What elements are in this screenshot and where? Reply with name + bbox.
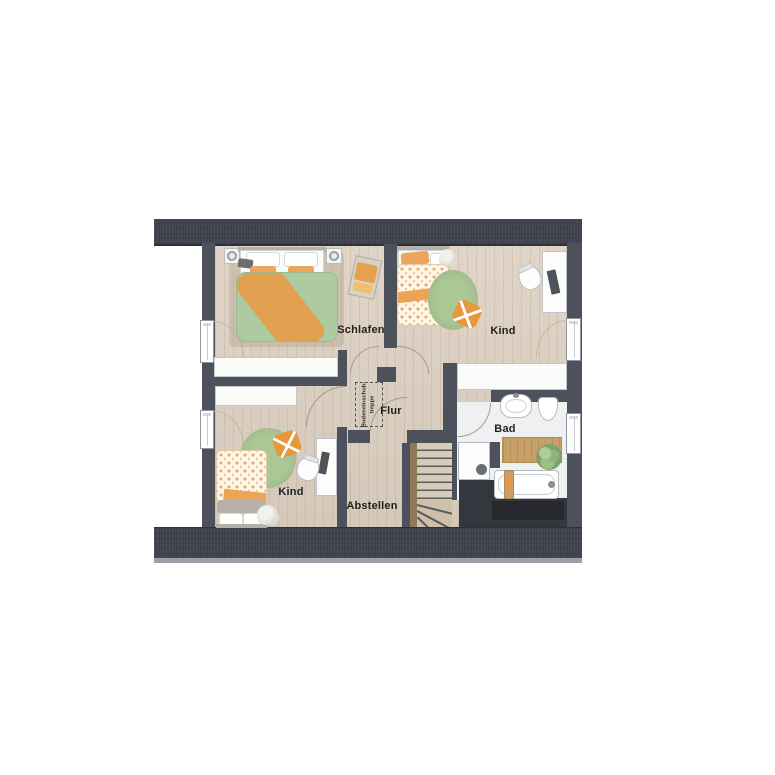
room-label-bad: Bad [485, 423, 525, 435]
eave-edge [154, 558, 582, 563]
bath-plant [536, 444, 562, 470]
window-schlafen [200, 320, 214, 363]
shower [458, 442, 490, 480]
plant [257, 505, 278, 525]
room-label-flur: Flur [369, 405, 413, 417]
pillow [284, 252, 318, 267]
window-bad [566, 413, 581, 454]
room-label-kind-top: Kind [478, 325, 528, 337]
wall-schlafen-south [215, 377, 347, 386]
wall-bad-west [443, 363, 457, 441]
roof-band-bottom [154, 527, 582, 559]
window-kind-bottom [200, 410, 214, 449]
wall-flur-junction [377, 367, 396, 382]
wardrobe-schlafen [214, 357, 338, 377]
bed-headboard [216, 524, 267, 528]
staircase [417, 443, 452, 500]
plant [439, 249, 456, 266]
wall-exterior-left [202, 243, 215, 527]
wall-abstellen-stairs [402, 443, 410, 527]
stair-winder [417, 500, 452, 527]
wardrobe-kind-bottom [215, 386, 297, 406]
room-label-schlafen: Schlafen [326, 324, 396, 336]
room-label-kind-bottom: Kind [266, 486, 316, 498]
wardrobe-kind-top [457, 363, 567, 390]
shower-fixture-icon [476, 464, 487, 475]
attic-hatch-line1: Bodeneinschub- [362, 382, 369, 427]
room-label-abstellen: Abstellen [337, 500, 407, 512]
wall-bad-north-west [443, 390, 457, 402]
shower-partition [490, 442, 500, 468]
throw-blanket [236, 272, 328, 342]
lamp-left [227, 251, 237, 261]
wall-abstellen-north-west [348, 430, 370, 443]
shampoo-bottle [506, 477, 512, 487]
stair-stringer [410, 443, 417, 527]
wall-exterior-right [567, 243, 582, 527]
lamp-right [329, 251, 339, 261]
wall-kindbottom-east [337, 427, 347, 527]
wall-jamb-west [338, 350, 347, 378]
tub-faucet [548, 481, 555, 488]
sink-faucet [513, 393, 519, 398]
void-inset [492, 501, 564, 520]
roof-band-top [154, 219, 582, 246]
window-kind-top [566, 318, 581, 361]
duvet-double-bed [236, 272, 338, 342]
floorplan-attic: Bodeneinschub- treppe Schlafen Kind Kind… [0, 0, 775, 775]
